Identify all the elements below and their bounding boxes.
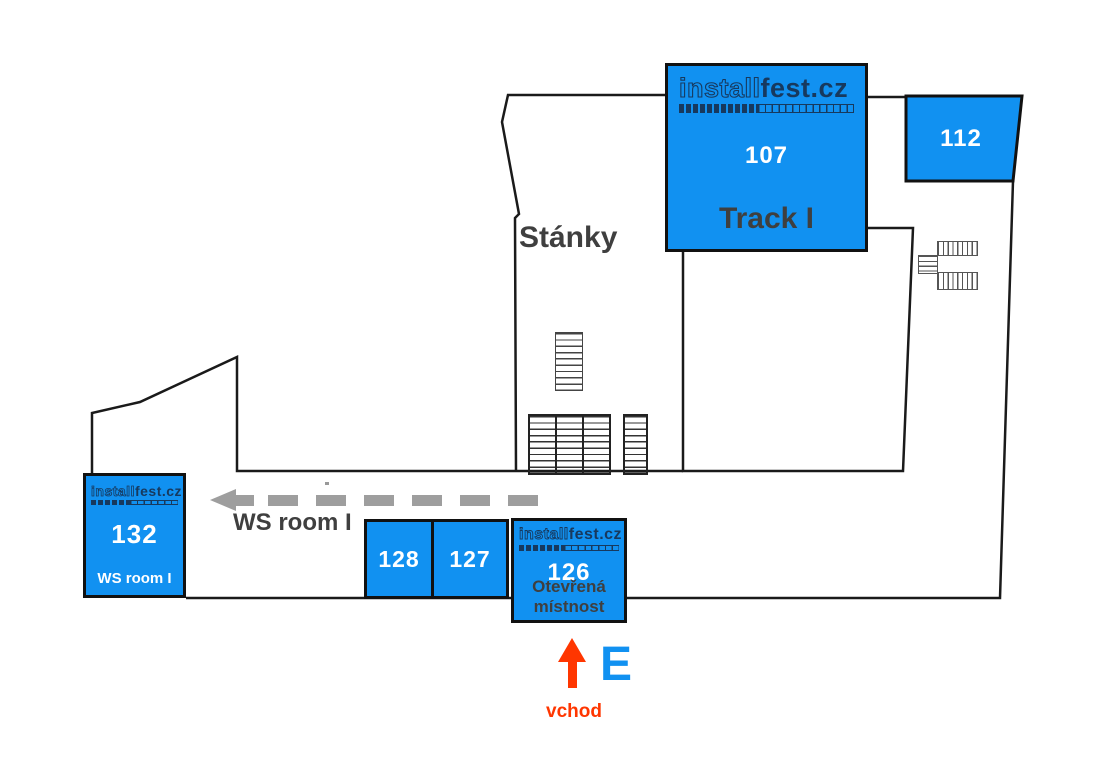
room-126-open-room: installfest.cz 126 Otevřená místnost [511, 518, 627, 623]
logo-barcode-filled [519, 545, 564, 551]
room-127: 127 [431, 519, 509, 599]
room-132-name: WS room I [86, 570, 183, 587]
room-126-name-line1: Otevřená [514, 577, 624, 597]
logo-install-text: install [91, 483, 135, 499]
u-stairs-icon-upper-flight [937, 241, 978, 256]
stands-area-label: Stánky [519, 221, 617, 255]
entrance-letter: E [600, 637, 632, 692]
room-112-number: 112 [940, 125, 982, 153]
table-column [582, 416, 609, 473]
table-column [530, 416, 555, 473]
room-127-number: 127 [449, 546, 490, 573]
installfest-logo: installfest.cz [519, 527, 619, 551]
dashed-arrow-shaft [234, 495, 254, 506]
logo-barcode [679, 104, 854, 113]
venue-floor-plan: installfest.cz 107 Track I 112 Stánky in… [0, 0, 1107, 778]
logo-barcode-hollow [758, 104, 854, 113]
room-107-name: Track I [668, 202, 865, 236]
logo-install-text: install [519, 526, 569, 543]
installfest-logo: installfest.cz [679, 75, 854, 113]
logo-fest-text: fest.cz [569, 526, 622, 543]
room-112-label-area: 112 [906, 96, 1016, 181]
arrow-up-head [558, 638, 586, 662]
table-column [555, 416, 582, 473]
logo-install-text: install [679, 73, 761, 103]
room-128: 128 [364, 519, 434, 599]
room-107-number: 107 [668, 142, 865, 170]
entrance-label: vchod [546, 701, 602, 723]
logo-barcode-filled [91, 500, 130, 505]
room-126-name-line2: místnost [514, 597, 624, 617]
room-132-ws-room1: installfest.cz 132 WS room I [83, 473, 186, 598]
logo-fest-text: fest.cz [761, 73, 849, 103]
arrow-up-icon [557, 638, 587, 688]
stairs-icon [555, 332, 583, 391]
logo-barcode-hollow [564, 545, 619, 551]
tables-icon [528, 414, 611, 475]
u-stairs-icon-lower-flight [937, 272, 978, 290]
stray-dot [325, 482, 329, 485]
room-128-number: 128 [378, 546, 419, 573]
dashed-arrow-left-icon [210, 489, 236, 511]
installfest-logo: installfest.cz [91, 484, 178, 505]
arrow-up-shaft [568, 662, 577, 688]
room-132-number: 132 [86, 519, 183, 550]
logo-barcode [91, 500, 178, 505]
wall-room107-outline [683, 228, 913, 471]
ws-room-arrow-label: WS room I [233, 509, 352, 537]
logo-barcode-hollow [130, 500, 178, 505]
logo-fest-text: fest.cz [135, 483, 182, 499]
logo-barcode-filled [679, 104, 758, 113]
u-stairs-icon-landing [918, 255, 938, 274]
small-table-icon [623, 414, 648, 475]
dashed-arrow-dashes [268, 495, 538, 506]
room-107-track1: installfest.cz 107 Track I [665, 63, 868, 252]
logo-barcode [519, 545, 619, 551]
